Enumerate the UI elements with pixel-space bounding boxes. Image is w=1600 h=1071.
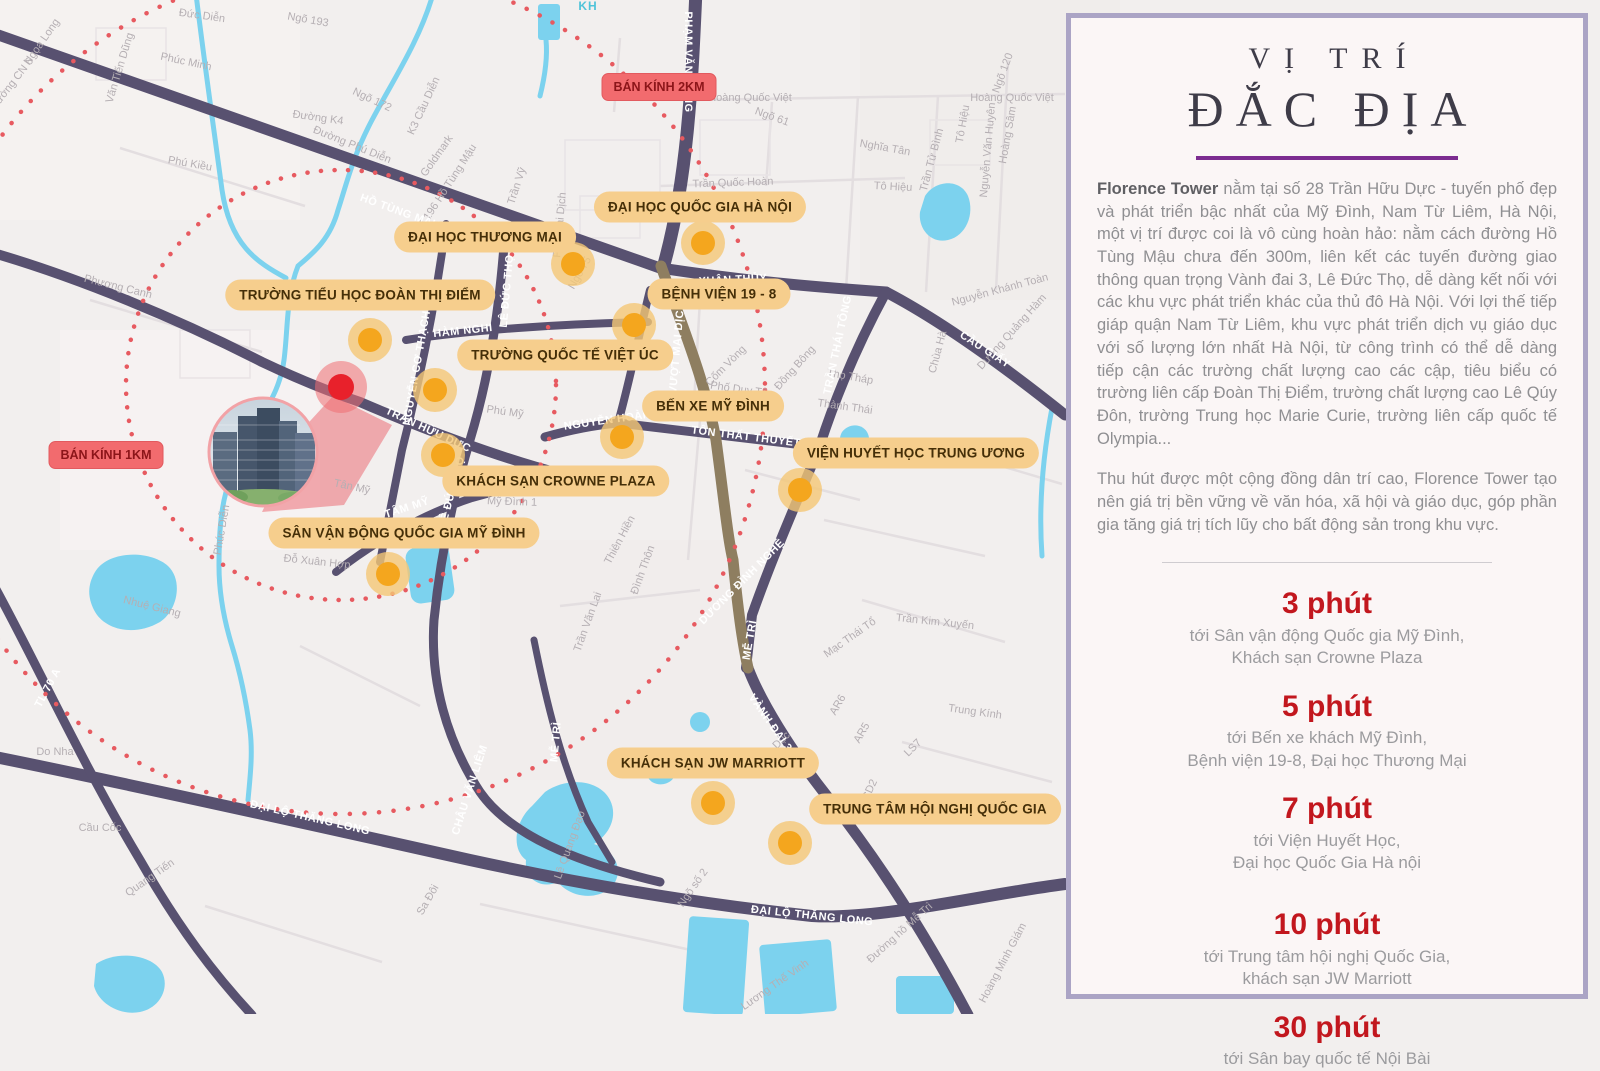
poi-marker	[413, 368, 457, 412]
panel-paragraph-2: Thu hút được một cộng đồng dân trí cao, …	[1071, 468, 1583, 536]
time-destinations: Khách sạn Crowne Plaza	[1071, 647, 1583, 669]
project-location-marker	[315, 361, 367, 413]
time-destinations: tới Sân vận động Quốc gia Mỹ Đình,	[1071, 625, 1583, 647]
poi-label-dai-hoc-quoc-gia: ĐẠI HỌC QUỐC GIA HÀ NỘI	[594, 192, 806, 223]
radius-1km-label: BÁN KÍNH 1KM	[49, 441, 164, 469]
time-value: 30 phút	[1071, 1011, 1583, 1046]
district-label: KH	[578, 0, 597, 13]
time-value: 5 phút	[1071, 690, 1583, 725]
poi-label-crowne-plaza: KHÁCH SẠN CROWNE PLAZA	[442, 466, 669, 497]
travel-time-5min: 5 phút tới Bến xe khách Mỹ Đình, Bệnh vi…	[1071, 690, 1583, 772]
poi-label-san-van-dong: SÂN VẬN ĐỘNG QUỐC GIA MỸ ĐÌNH	[268, 518, 539, 549]
street-label: Tô Hiệu	[873, 180, 912, 194]
poi-marker	[768, 821, 812, 865]
radius-2km-label: BÁN KÍNH 2KM	[602, 73, 717, 101]
street-label: Hoàng Quốc Việt	[970, 92, 1054, 104]
travel-time-10min: 10 phút tới Trung tâm hội nghị Quốc Gia,…	[1071, 908, 1583, 990]
poi-marker	[778, 468, 822, 512]
time-value: 10 phút	[1071, 908, 1583, 943]
location-map-infographic: Ngọa Long Văn Tiến Dũng Đức Diễn Phúc Mi…	[0, 0, 1600, 1014]
travel-time-3min: 3 phút tới Sân vận động Quốc gia Mỹ Đình…	[1071, 587, 1583, 669]
poi-label-jw-marriott: KHÁCH SẠN JW MARRIOTT	[607, 748, 819, 779]
street-label: Cầu Cốc	[79, 822, 122, 834]
time-value: 3 phút	[1071, 587, 1583, 622]
panel-title-large: ĐẮC ĐỊA	[1071, 80, 1583, 138]
time-destinations: Bệnh viện 19-8, Đại học Thương Mại	[1071, 750, 1583, 772]
panel-title-small: VỊ TRÍ	[1071, 42, 1583, 76]
time-value: 7 phút	[1071, 792, 1583, 827]
poi-label-hoi-nghi-quoc-gia: TRUNG TÂM HỘI NGHỊ QUỐC GIA	[809, 794, 1061, 825]
poi-label-benh-vien-19-8: BỆNH VIỆN 19 - 8	[648, 279, 791, 310]
poi-marker	[366, 552, 410, 596]
panel-divider	[1162, 562, 1492, 563]
brand-name: Florence Tower	[1097, 180, 1218, 198]
paragraph-1-text: nằm tại số 28 Trần Hữu Dực - tuyến phố đ…	[1097, 180, 1557, 448]
poi-marker	[691, 781, 735, 825]
poi-label-vien-huyet-hoc: VIỆN HUYẾT HỌC TRUNG ƯƠNG	[793, 438, 1039, 469]
street-label: Do Nha	[36, 746, 73, 758]
time-destinations: tới Trung tâm hội nghị Quốc Gia,	[1071, 946, 1583, 968]
poi-marker	[681, 221, 725, 265]
poi-marker	[348, 318, 392, 362]
street-label: Mỹ Đình 1	[487, 495, 538, 509]
title-underline	[1196, 156, 1458, 160]
time-destinations: Đại học Quốc Gia Hà nội	[1071, 852, 1583, 874]
poi-label-dai-hoc-thuong-mai: ĐẠI HỌC THƯƠNG MẠI	[394, 222, 576, 253]
poi-label-doan-thi-diem: TRƯỜNG TIỂU HỌC ĐOÀN THỊ ĐIỂM	[225, 280, 495, 311]
street-label: Hoàng Quốc Việt	[708, 92, 792, 104]
time-destinations: khách sạn JW Marriott	[1071, 968, 1583, 990]
poi-label-ben-xe-my-dinh: BẾN XE MỸ ĐÌNH	[642, 391, 784, 422]
poi-marker	[600, 415, 644, 459]
panel-paragraph-1: Florence Tower nằm tại số 28 Trần Hữu Dự…	[1071, 178, 1583, 450]
time-destinations: tới Viện Huyết Học,	[1071, 830, 1583, 852]
travel-time-30min: 30 phút tới Sân bay quốc tế Nội Bài	[1071, 1011, 1583, 1071]
time-destinations: tới Sân bay quốc tế Nội Bài	[1071, 1048, 1583, 1070]
travel-time-7min: 7 phút tới Viện Huyết Học, Đại học Quốc …	[1071, 792, 1583, 874]
time-destinations: tới Bến xe khách Mỹ Đình,	[1071, 727, 1583, 749]
info-panel: VỊ TRÍ ĐẮC ĐỊA Florence Tower nằm tại số…	[1066, 13, 1588, 999]
poi-label-viet-uc: TRƯỜNG QUỐC TẾ VIỆT ÚC	[457, 340, 673, 371]
